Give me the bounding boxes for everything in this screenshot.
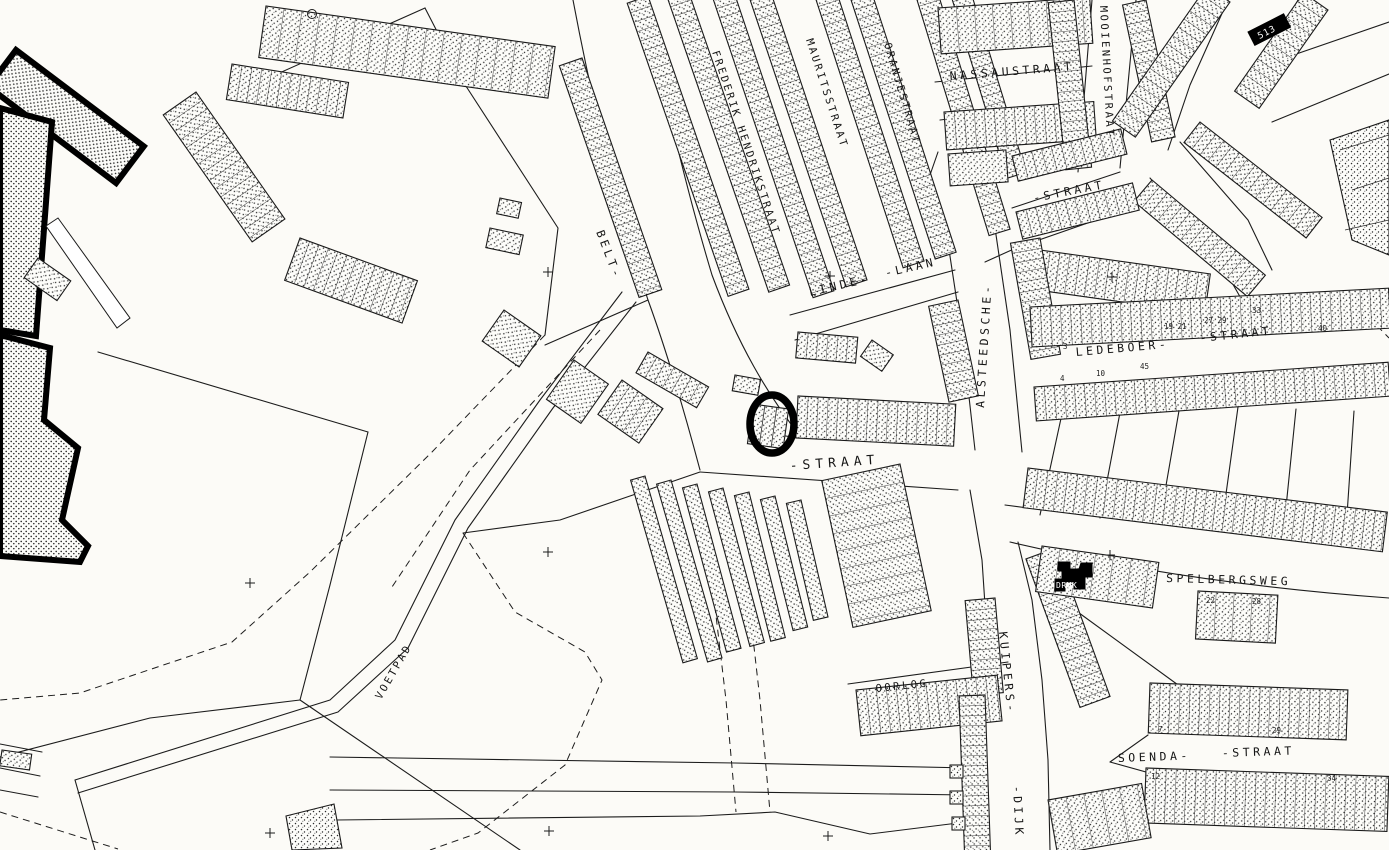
housing-fan-south <box>631 464 932 663</box>
house-number: 22 <box>1206 596 1215 605</box>
street-label-soenda-straat: -STRAAT <box>1222 743 1295 760</box>
factory-complex <box>0 50 144 562</box>
annotation-circle <box>747 395 794 453</box>
map-canvas: 513 FREDERIK HENDRIKSTRAAT MAURITSSTRAAT… <box>0 0 1389 850</box>
housing-row <box>1034 362 1389 421</box>
house-number: 3 <box>1063 342 1068 351</box>
housing-row <box>163 92 285 242</box>
street-label-dijk: -DIJK <box>1010 785 1027 838</box>
house-number: 34 <box>1327 774 1337 783</box>
housing-southeast <box>0 591 1389 850</box>
housing-block <box>1048 784 1151 850</box>
housing-row <box>226 64 348 118</box>
street-label-spelbergsweg: SPELBERGSWEG <box>1166 571 1291 588</box>
house-number: 10 <box>1096 369 1106 378</box>
druk-label: DRUK <box>1056 581 1077 590</box>
house-number: 45 <box>1140 362 1149 371</box>
housing-row <box>285 238 418 323</box>
housing-ledeboer <box>1010 238 1389 552</box>
street-label-soenda: SOENDA- <box>1118 748 1191 765</box>
house-number: 40 <box>1318 324 1328 333</box>
house-number: 29 <box>1272 726 1281 735</box>
housing-row <box>1144 768 1389 831</box>
house-number: 7 <box>1158 725 1163 734</box>
house-number: 19 21 <box>1164 322 1187 331</box>
street-label-voetpad: VOETPAD <box>373 642 414 701</box>
house-number: 33 <box>1252 306 1261 315</box>
house-number: 12 <box>1151 772 1160 781</box>
house-number: 27 29 <box>1204 316 1227 325</box>
housing-block <box>822 464 931 627</box>
housing-row <box>929 300 979 402</box>
housing-row <box>1148 683 1348 740</box>
housing-row <box>1023 468 1387 552</box>
street-label-alsteedsche: ALSTEEDSCHE- <box>973 282 995 408</box>
voetpad-path <box>75 292 636 793</box>
housing-row <box>1184 122 1322 238</box>
street-label-mooienhofstraat: MOOIENHOFSTRAAT <box>1097 6 1116 139</box>
house-number: 4 <box>1060 374 1065 383</box>
house-number: 28 <box>1252 597 1262 606</box>
housing-row <box>796 396 956 446</box>
cadastral-map: 513 FREDERIK HENDRIKSTRAAT MAURITSSTRAAT… <box>0 0 1389 850</box>
housing-west-cluster <box>163 6 663 443</box>
